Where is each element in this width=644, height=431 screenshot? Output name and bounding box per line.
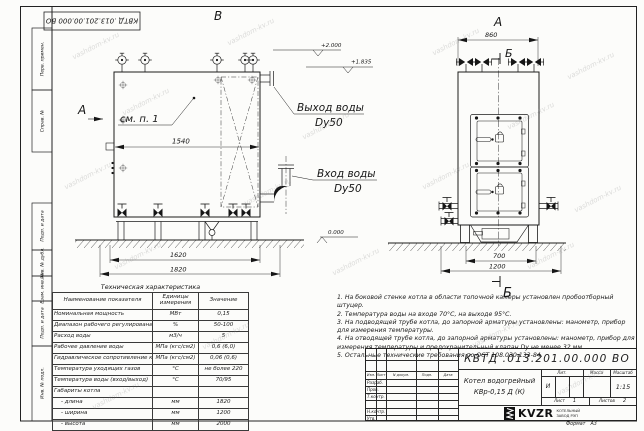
table-row: Температура уходящих газов°Сне более 220 [53, 365, 249, 376]
note-line: 3. На подводящей трубе котла, до запорно… [337, 319, 636, 336]
scale-value: 1:15 [610, 376, 636, 397]
base-frame [116, 222, 258, 241]
col-header-units: Единицы измерения [153, 293, 199, 310]
col-data: Дата [438, 371, 458, 379]
title-block: КВТД .013.201.00.000 ВО Изм. Лист N доку… [365, 348, 637, 421]
logo-subtitle-line2: ЗАВОД РЭП [556, 414, 580, 418]
kvzr-logo-text: KVZR [518, 407, 553, 420]
col-podp: Подп. [416, 371, 438, 379]
front-legs [461, 225, 538, 243]
doc-number-top: КВТД .013.201.00.000 ВО [45, 17, 138, 25]
note-line: 1. На боковой стенке котла в области топ… [337, 294, 636, 311]
dim-1620: 1620 [170, 251, 187, 259]
dim-1540: 1540 [172, 138, 190, 146]
inlet-label: Вход воды [317, 168, 376, 180]
dim-860: 860 [485, 31, 497, 39]
dim-1200: 1200 [489, 263, 506, 271]
lit-label: Лит. [541, 369, 583, 376]
row-prov: Пров. [367, 387, 379, 392]
kvzr-logo-icon [504, 407, 515, 420]
table-row: - ширинамм1200 [53, 409, 249, 420]
elev-mid: +1.835 [351, 60, 372, 66]
note-line: 2. Температура воды на входе 70°С, на вы… [337, 311, 636, 319]
view-arrow-label-a: А [77, 103, 86, 117]
mass-label: Масса [583, 369, 610, 376]
stamp-label: Справ. № [40, 110, 46, 133]
stamp-label: Перв. примен. [40, 42, 46, 77]
table-row: Габариты котла [53, 387, 249, 398]
table-row: Расход водым3/ч5 [53, 332, 249, 343]
table-row: Номинальная мощностьМВт0,15 [53, 310, 249, 321]
sheet-label: Лист [554, 399, 565, 404]
tech-characteristics-table: Техническая характеристика Наименование … [52, 283, 249, 431]
sheet-cell: Лист 1 [541, 397, 589, 405]
format-note: Формат А3 [566, 422, 597, 427]
tech-table-title: Техническая характеристика [52, 283, 249, 292]
detail-note: см. п. 1 [120, 114, 159, 125]
stamp-label: Взам. инв. № [40, 272, 46, 303]
elev-zero: 0.000 [328, 230, 344, 236]
water-outlet-pipe [260, 71, 274, 86]
row-nkontr: Н.контр. [367, 409, 385, 414]
table-row: - высотамм2000 [53, 420, 249, 431]
row-utv: Утв. [367, 416, 376, 421]
boiler-side-view: В А Выход воды Dy50 [75, 9, 377, 277]
manufacturer-logo: KVZR КОТЕЛЬНЫЙ ЗАВОД РЭП [458, 405, 636, 422]
sheets-value: 2 [623, 398, 626, 404]
row-razrab: Разраб. [367, 380, 383, 385]
furnace-door-upper [471, 115, 529, 168]
table-row: Температура воды (вход/выход)°С70/95 [53, 376, 249, 387]
dim-1820: 1820 [170, 266, 187, 274]
scale-label: Масштаб [610, 369, 636, 376]
outlet-label: Выход воды [297, 102, 364, 114]
sheets-label: Листов [599, 399, 615, 404]
stamp-label: Инв. № подл. [40, 367, 46, 399]
safety-valves-top [115, 53, 260, 72]
boiler-front-view: А 860 Б [388, 15, 566, 301]
table-row: Гидравлическое сопротивление котлаМПа (к… [53, 354, 249, 365]
elev-top: +2.000 [321, 43, 342, 49]
table-row: Диапазон рабочего регулирования%50-100 [53, 321, 249, 332]
water-inlet-pipe [260, 156, 294, 214]
col-izm: Изм. [366, 371, 376, 379]
drain-valves-bottom [118, 204, 251, 217]
sheet-value: 1 [573, 398, 576, 404]
col-list: Лист [376, 371, 386, 379]
row-tkontr: Т.контр. [367, 394, 385, 399]
product-name-line2: КВр-0,15 Д (К) [474, 387, 525, 398]
col-header-value: Значение [199, 293, 249, 310]
sheets-cell: Листов 2 [589, 397, 636, 405]
lit-value: И [541, 376, 555, 397]
inlet-dn: Dy50 [334, 183, 362, 195]
product-name: Котел водогрейный КВр-0,15 Д (К) [458, 369, 541, 405]
view-letter-a: А [493, 15, 502, 29]
table-row: Рабочее давление водыМПа (кгс/см2)0,6 (6… [53, 343, 249, 354]
product-name-line1: Котел водогрейный [464, 376, 535, 387]
boiler-drawing-sheet: { "watermark": { "text": "vashdom-kv.ru"… [0, 0, 644, 430]
col-header-name: Наименование показателя [53, 293, 153, 310]
stamp-label: Подп. и дата [40, 307, 46, 338]
doc-number: КВТД .013.201.00.000 ВО [458, 349, 636, 369]
stamp-label: Подп. и дата [40, 210, 46, 241]
logo-subtitle-line1: КОТЕЛЬНЫЙ [556, 409, 580, 413]
section-letter-top: Б [505, 47, 513, 60]
dim-700: 700 [493, 252, 505, 260]
table-row: - длинамм1820 [53, 398, 249, 409]
view-letter-v: В [214, 9, 222, 23]
col-docum: N докум. [386, 371, 416, 379]
outlet-dn: Dy50 [315, 117, 343, 129]
furnace-door-lower [471, 167, 529, 217]
table-header-row: Наименование показателя Единицы измерени… [53, 293, 249, 310]
